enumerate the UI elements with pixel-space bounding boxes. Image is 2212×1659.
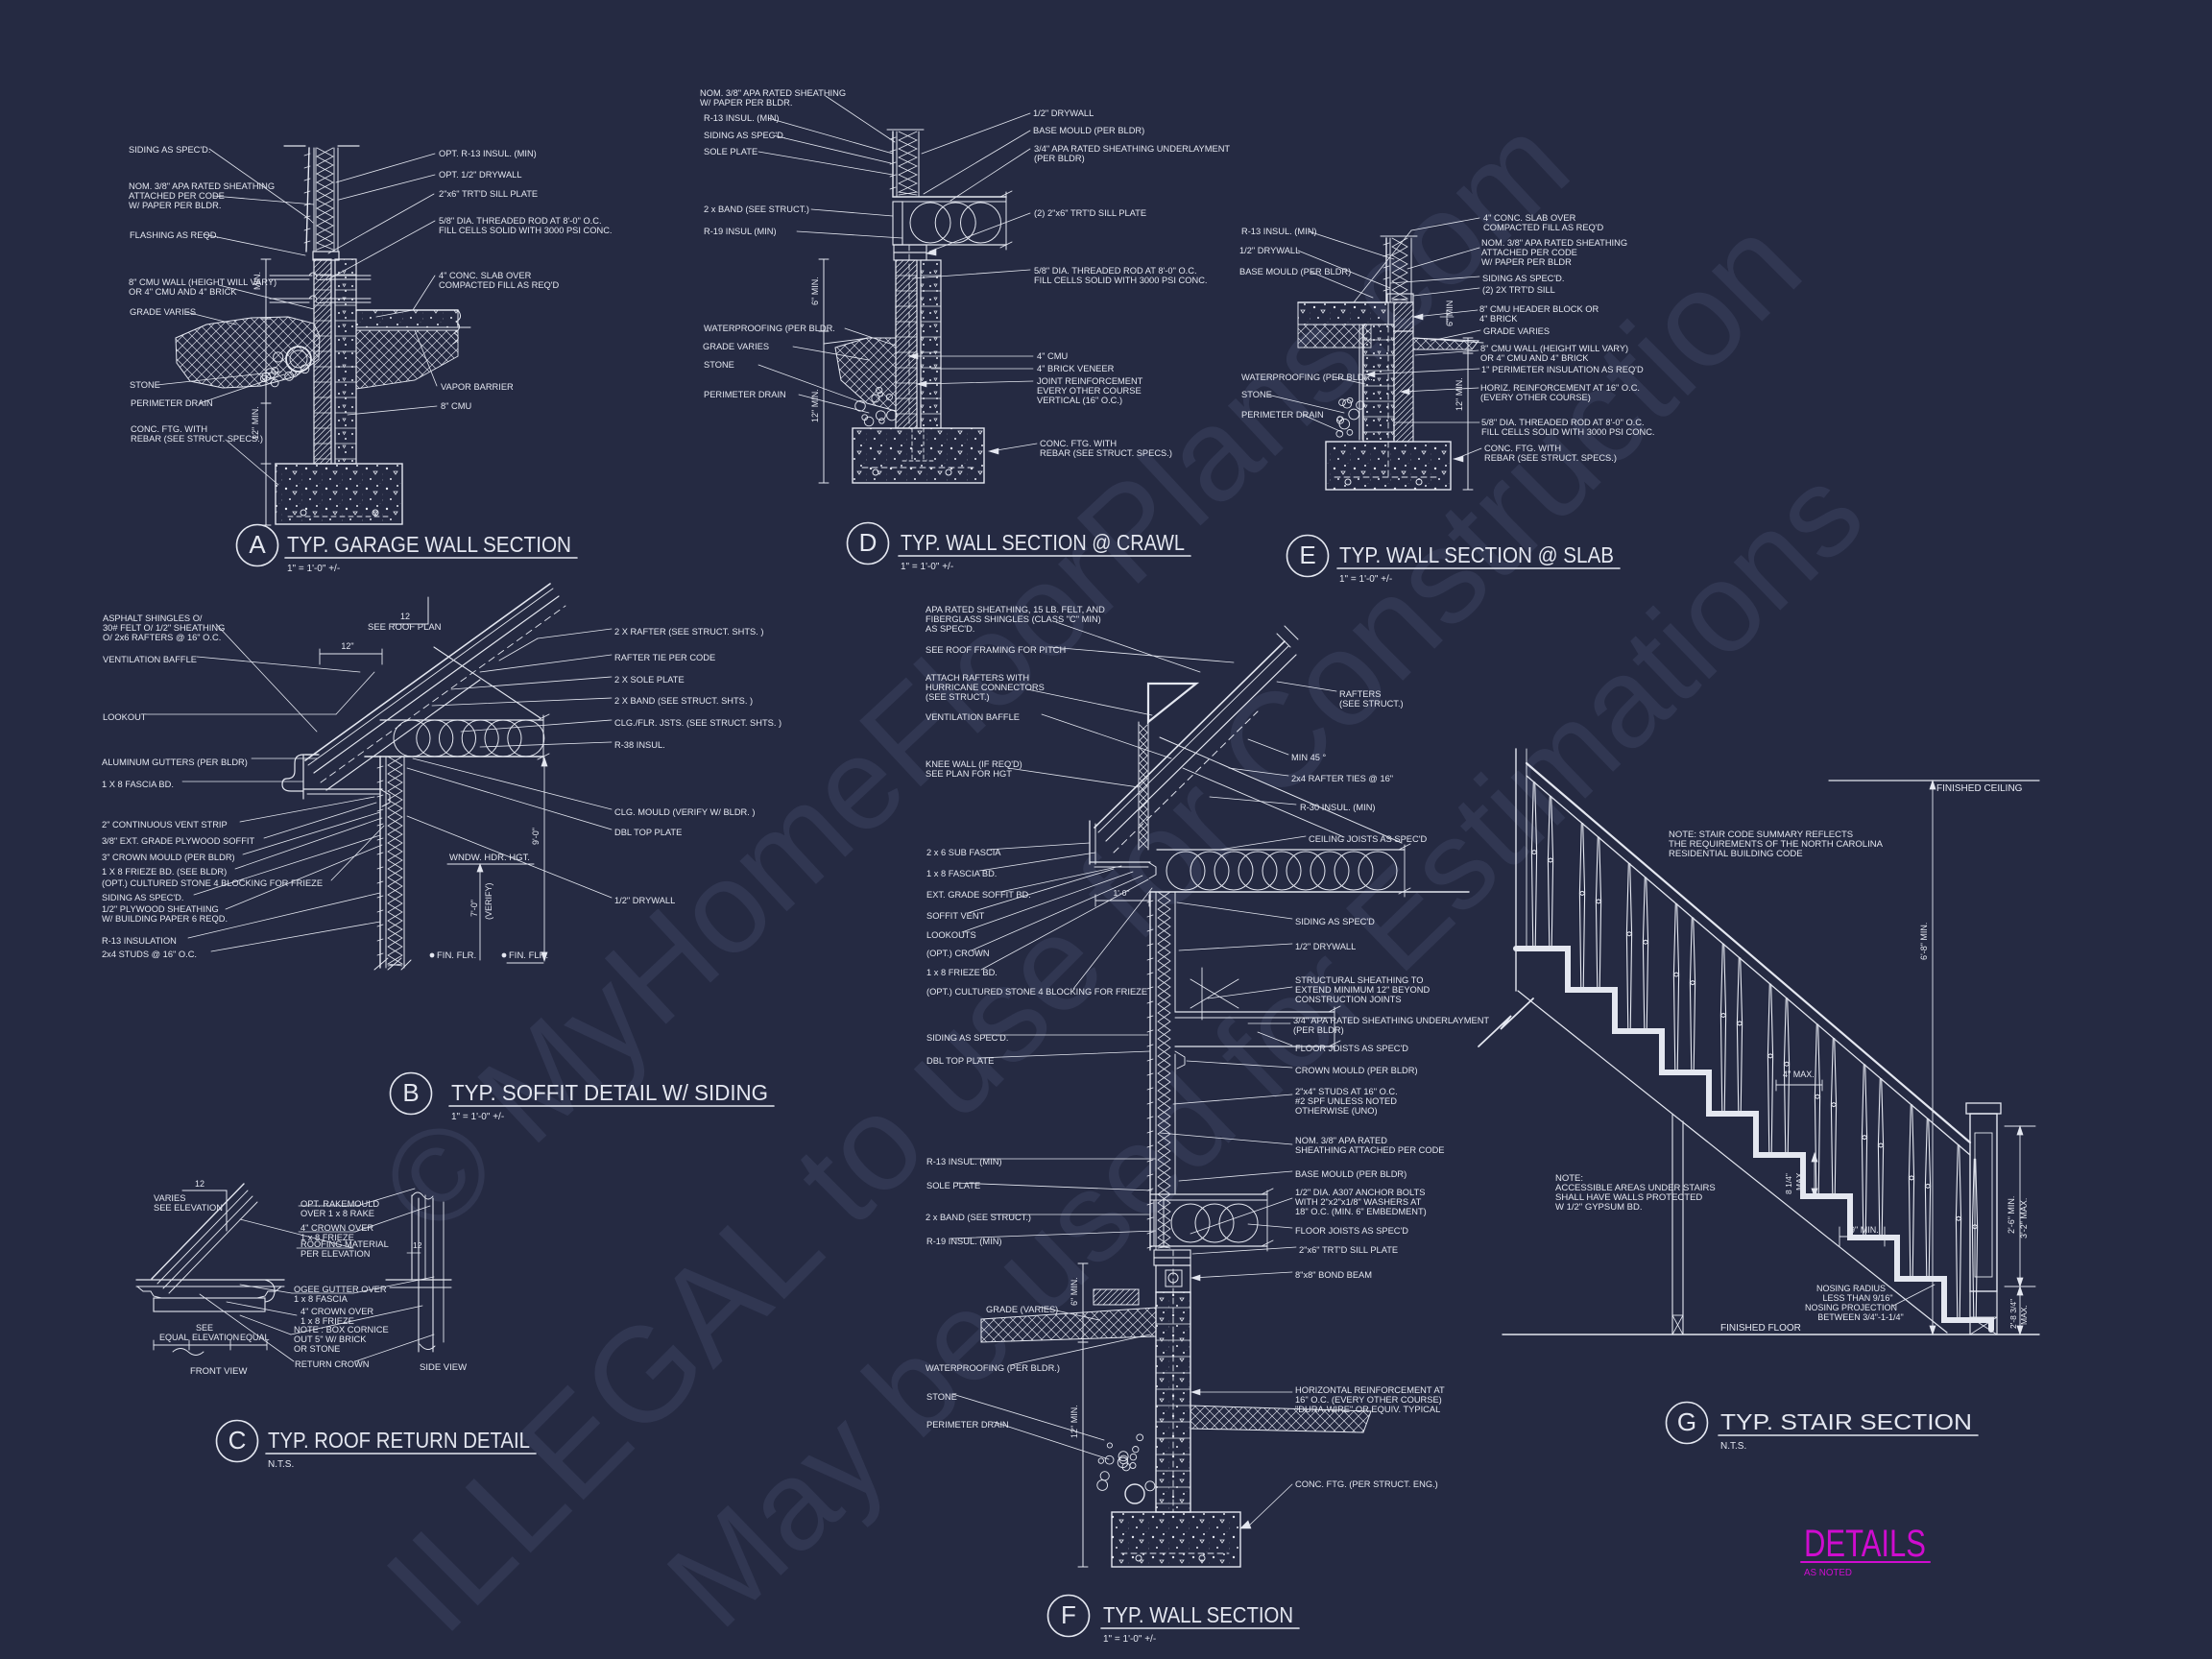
- svg-text:CONC. FTG. WITH: CONC. FTG. WITH: [1484, 444, 1561, 453]
- svg-text:PERIMETER DRAIN: PERIMETER DRAIN: [1241, 410, 1324, 420]
- svg-text:12: 12: [195, 1179, 204, 1189]
- svg-text:CLG. MOULD (VERIFY W/ BLDR. ): CLG. MOULD (VERIFY W/ BLDR. ): [614, 807, 756, 817]
- svg-text:4" CROWN OVER: 4" CROWN OVER: [301, 1307, 373, 1316]
- svg-text:6" MIN.: 6" MIN.: [1070, 1277, 1079, 1306]
- svg-text:1 x 8 FRIEZE BD.: 1 x 8 FRIEZE BD.: [926, 968, 998, 977]
- svg-text:5/8" DIA. THREADED ROD AT 8'-0: 5/8" DIA. THREADED ROD AT 8'-0" O.C.: [1481, 418, 1645, 427]
- svg-text:CEILING JOISTS AS SPEC'D: CEILING JOISTS AS SPEC'D: [1309, 834, 1427, 844]
- svg-text:NOSING PROJECTION: NOSING PROJECTION: [1805, 1303, 1897, 1312]
- svg-text:JOINT REINFORCEMENT: JOINT REINFORCEMENT: [1037, 376, 1143, 386]
- svg-text:AS NOTED: AS NOTED: [1804, 1568, 1852, 1578]
- svg-text:2"x6" TRT'D SILL PLATE: 2"x6" TRT'D SILL PLATE: [1299, 1245, 1398, 1255]
- svg-text:REBAR (SEE STRUCT. SPECS.): REBAR (SEE STRUCT. SPECS.): [131, 434, 263, 444]
- svg-text:1/2" DRYWALL: 1/2" DRYWALL: [614, 896, 675, 905]
- svg-text:6'-8" MIN.: 6'-8" MIN.: [1919, 923, 1929, 960]
- svg-text:R-13 INSUL. (MIN): R-13 INSUL. (MIN): [704, 113, 780, 123]
- svg-text:2 X SOLE PLATE: 2 X SOLE PLATE: [614, 675, 685, 685]
- svg-text:RETURN CROWN: RETURN CROWN: [295, 1359, 369, 1369]
- svg-text:R-13 INSUL. (MIN): R-13 INSUL. (MIN): [1241, 227, 1317, 236]
- svg-text:1" = 1'-0" +/-: 1" = 1'-0" +/-: [451, 1112, 504, 1122]
- svg-text:BASE MOULD (PER BLDR): BASE MOULD (PER BLDR): [1239, 267, 1351, 276]
- svg-text:TYP. WALL SECTION: TYP. WALL SECTION: [1103, 1602, 1293, 1627]
- svg-text:SOLE PLATE: SOLE PLATE: [926, 1181, 980, 1190]
- svg-text:(SEE STRUCT.): (SEE STRUCT.): [1339, 699, 1404, 709]
- svg-text:SIDING AS SPEC'D.: SIDING AS SPEC'D.: [704, 131, 785, 140]
- svg-text:ATTACHED PER CODE: ATTACHED PER CODE: [129, 191, 225, 201]
- svg-text:4" CROWN OVER: 4" CROWN OVER: [301, 1223, 373, 1233]
- svg-text:(OPT.) CROWN: (OPT.) CROWN: [926, 949, 990, 958]
- svg-text:ASPHALT SHINGLES O/: ASPHALT SHINGLES O/: [103, 613, 203, 623]
- svg-text:ELEVATION: ELEVATION: [192, 1333, 239, 1342]
- svg-text:R-30 INSUL. (MIN): R-30 INSUL. (MIN): [1300, 803, 1376, 812]
- svg-text:REBAR (SEE STRUCT. SPECS.): REBAR (SEE STRUCT. SPECS.): [1040, 448, 1172, 458]
- svg-text:4" CMU: 4" CMU: [1037, 351, 1068, 361]
- svg-text:OVER 1 x 8 RAKE: OVER 1 x 8 RAKE: [301, 1209, 374, 1218]
- svg-text:TYP. WALL SECTION @ CRAWL: TYP. WALL SECTION @ CRAWL: [901, 530, 1185, 555]
- svg-text:2 x 6 SUB FASCIA: 2 x 6 SUB FASCIA: [926, 848, 1001, 857]
- svg-text:1 x 8 FASCIA: 1 x 8 FASCIA: [294, 1294, 349, 1304]
- svg-text:2 X BAND (SEE STRUCT. SHTS. ): 2 X BAND (SEE STRUCT. SHTS. ): [614, 696, 753, 706]
- svg-text:OPT. R-13 INSUL. (MIN): OPT. R-13 INSUL. (MIN): [439, 149, 537, 158]
- svg-text:1" = 1'-0" +/-: 1" = 1'-0" +/-: [901, 562, 953, 572]
- svg-text:AS SPEC'D.: AS SPEC'D.: [926, 624, 974, 634]
- svg-text:HURRICANE CONNECTORS: HURRICANE CONNECTORS: [926, 683, 1045, 692]
- svg-text:NOM. 3/8" APA RATED: NOM. 3/8" APA RATED: [1295, 1136, 1387, 1145]
- svg-text:2"x4" STUDS AT 16" O.C.: 2"x4" STUDS AT 16" O.C.: [1295, 1087, 1398, 1096]
- svg-text:PERIMETER DRAIN: PERIMETER DRAIN: [926, 1420, 1009, 1430]
- svg-text:GRADE VARIES: GRADE VARIES: [130, 307, 196, 317]
- svg-text:D: D: [859, 528, 878, 557]
- svg-text:FINISHED FLOOR: FINISHED FLOOR: [1720, 1323, 1801, 1334]
- svg-text:16" O.C. (EVERY OTHER COURSE): 16" O.C. (EVERY OTHER COURSE): [1295, 1395, 1442, 1405]
- svg-text:SEE: SEE: [196, 1323, 213, 1333]
- svg-text:BETWEEN 3/4"-1-1/4": BETWEEN 3/4"-1-1/4": [1817, 1312, 1903, 1322]
- svg-text:ATTACH RAFTERS WITH: ATTACH RAFTERS WITH: [926, 673, 1029, 683]
- svg-text:BASE MOULD (PER BLDR): BASE MOULD (PER BLDR): [1295, 1169, 1407, 1179]
- svg-text:CROWN MOULD (PER BLDR): CROWN MOULD (PER BLDR): [1295, 1066, 1418, 1075]
- svg-text:7'-0": 7'-0": [469, 900, 479, 917]
- svg-text:FILL CELLS SOLID WITH 3000 PSI: FILL CELLS SOLID WITH 3000 PSI CONC.: [1034, 276, 1208, 285]
- svg-text:KNEE WALL (IF REQ'D): KNEE WALL (IF REQ'D): [926, 759, 1022, 769]
- svg-text:SEE ROOF FRAMING FOR PITCH: SEE ROOF FRAMING FOR PITCH: [926, 645, 1066, 655]
- svg-text:SIDE VIEW: SIDE VIEW: [420, 1362, 467, 1373]
- svg-text:WATERPROOFING (PER BLDR.): WATERPROOFING (PER BLDR.): [926, 1363, 1060, 1373]
- svg-text:TYP. SOFFIT DETAIL W/ SIDING: TYP. SOFFIT DETAIL W/ SIDING: [451, 1080, 768, 1105]
- svg-text:COMPACTED FILL AS REQ'D: COMPACTED FILL AS REQ'D: [1483, 223, 1604, 232]
- svg-text:WATERPROOFING (PER BLDR.: WATERPROOFING (PER BLDR.: [1241, 373, 1373, 382]
- svg-text:B: B: [402, 1078, 419, 1107]
- svg-text:OGEE GUTTER OVER: OGEE GUTTER OVER: [294, 1285, 387, 1294]
- svg-text:MAX.: MAX.: [2019, 1305, 2029, 1325]
- svg-text:GRADE VARIES: GRADE VARIES: [1483, 326, 1550, 336]
- svg-text:WATERPROOFING (PER BLDR.: WATERPROOFING (PER BLDR.: [704, 324, 835, 333]
- svg-text:STONE: STONE: [1241, 390, 1272, 399]
- svg-text:1/2" DIA. A307 ANCHOR BOLTS: 1/2" DIA. A307 ANCHOR BOLTS: [1295, 1188, 1425, 1197]
- svg-text:RAFTER TIE PER CODE: RAFTER TIE PER CODE: [614, 653, 715, 662]
- svg-text:STONE: STONE: [926, 1392, 957, 1402]
- svg-text:2 x BAND (SEE STRUCT.): 2 x BAND (SEE STRUCT.): [704, 204, 809, 214]
- svg-text:OR 4" CMU AND 4" BRICK: OR 4" CMU AND 4" BRICK: [1480, 353, 1589, 363]
- svg-text:LESS THAN 9/16": LESS THAN 9/16": [1822, 1293, 1892, 1303]
- svg-text:8" CMU WALL (HEIGHT WILL VARY): 8" CMU WALL (HEIGHT WILL VARY): [1480, 344, 1628, 353]
- svg-text:R-19 INSUL (MIN): R-19 INSUL (MIN): [704, 227, 777, 236]
- svg-text:8" CMU WALL (HEIGHT WILL VARY): 8" CMU WALL (HEIGHT WILL VARY): [129, 277, 276, 287]
- svg-text:SIDING AS SPEC'D.: SIDING AS SPEC'D.: [1482, 274, 1564, 283]
- svg-text:2"x6" TRT'D SILL PLATE: 2"x6" TRT'D SILL PLATE: [439, 189, 538, 199]
- svg-text:FIN. FLR.: FIN. FLR.: [509, 950, 548, 961]
- svg-text:#2 SPF UNLESS NOTED: #2 SPF UNLESS NOTED: [1295, 1096, 1397, 1106]
- svg-text:CONC. FTG. WITH: CONC. FTG. WITH: [1040, 439, 1117, 448]
- svg-text:12" MIN.: 12" MIN.: [1070, 1405, 1079, 1438]
- svg-text:4" MAX.: 4" MAX.: [1783, 1070, 1815, 1079]
- svg-text:COMPACTED FILL AS REQ'D: COMPACTED FILL AS REQ'D: [439, 280, 560, 290]
- svg-text:1/2" PLYWOOD SHEATHING: 1/2" PLYWOOD SHEATHING: [102, 904, 219, 914]
- svg-text:1 X 8 FRIEZE BD. (SEE BLDR): 1 X 8 FRIEZE BD. (SEE BLDR): [102, 867, 227, 877]
- svg-text:VARIES: VARIES: [154, 1193, 185, 1203]
- svg-text:N.T.S.: N.T.S.: [268, 1459, 294, 1470]
- svg-text:2x4 STUDS @ 16" O.C.: 2x4 STUDS @ 16" O.C.: [102, 950, 197, 959]
- svg-text:OTHERWISE (UNO): OTHERWISE (UNO): [1295, 1106, 1378, 1116]
- svg-text:W/ PAPER PER BLDR.: W/ PAPER PER BLDR.: [129, 201, 221, 210]
- svg-text:FILL CELLS SOLID WITH 3000 PSI: FILL CELLS SOLID WITH 3000 PSI CONC.: [439, 226, 613, 235]
- svg-text:2" CONTINUOUS VENT STRIP: 2" CONTINUOUS VENT STRIP: [102, 820, 228, 829]
- svg-text:FIBERGLASS SHINGLES (CLASS "C": FIBERGLASS SHINGLES (CLASS "C" MIN): [926, 614, 1101, 624]
- svg-text:8 1/4": 8 1/4": [1784, 1173, 1793, 1194]
- svg-text:3/4" APA RATED SHEATHING UNDER: 3/4" APA RATED SHEATHING UNDERLAYMENT: [1293, 1016, 1489, 1025]
- svg-text:O/ 2x6 RAFTERS @ 16" O.C.: O/ 2x6 RAFTERS @ 16" O.C.: [103, 633, 221, 642]
- svg-text:EXT. GRADE SOFFIT BD.: EXT. GRADE SOFFIT BD.: [926, 890, 1031, 900]
- svg-text:BASE MOULD (PER BLDR): BASE MOULD (PER BLDR): [1033, 126, 1144, 135]
- svg-text:MIN 45 °: MIN 45 °: [1291, 753, 1327, 762]
- svg-text:F: F: [1061, 1600, 1076, 1629]
- svg-text:SIDING AS SPEC'D.: SIDING AS SPEC'D.: [102, 893, 183, 902]
- svg-text:SOFFIT VENT: SOFFIT VENT: [926, 911, 985, 921]
- svg-text:TYP. WALL SECTION @ SLAB: TYP. WALL SECTION @ SLAB: [1339, 542, 1614, 567]
- svg-text:(PER BLDR): (PER BLDR): [1034, 154, 1085, 163]
- svg-text:SIDING AS SPEC'D.: SIDING AS SPEC'D.: [129, 145, 210, 155]
- svg-text:9'-0": 9'-0": [531, 828, 541, 845]
- svg-text:C: C: [228, 1426, 247, 1455]
- svg-text:(EVERY OTHER COURSE): (EVERY OTHER COURSE): [1480, 393, 1591, 402]
- svg-text:E: E: [1299, 541, 1315, 569]
- svg-text:8"x8" BOND BEAM: 8"x8" BOND BEAM: [1295, 1270, 1372, 1280]
- svg-text:R-13 INSULATION: R-13 INSULATION: [102, 936, 177, 946]
- svg-text:R-19 INSUL. (MIN): R-19 INSUL. (MIN): [926, 1237, 1002, 1246]
- svg-text:DETAILS: DETAILS: [1804, 1523, 1926, 1565]
- svg-text:REBAR (SEE STRUCT. SPECS.): REBAR (SEE STRUCT. SPECS.): [1484, 453, 1617, 463]
- svg-text:VENTILATION BAFFLE: VENTILATION BAFFLE: [926, 712, 1020, 722]
- svg-text:NOM. 3/8" APA RATED SHEATHING: NOM. 3/8" APA RATED SHEATHING: [700, 88, 846, 98]
- svg-text:1 X 8 FASCIA BD.: 1 X 8 FASCIA BD.: [102, 780, 174, 789]
- svg-text:CONSTRUCTION JOINTS: CONSTRUCTION JOINTS: [1295, 995, 1402, 1004]
- svg-text:18" O.C. (MIN. 6" EMBEDMENT): 18" O.C. (MIN. 6" EMBEDMENT): [1295, 1207, 1427, 1216]
- svg-text:(VERIFY): (VERIFY): [484, 882, 493, 920]
- svg-text:GRADE (VARIES): GRADE (VARIES): [986, 1305, 1058, 1314]
- svg-text:(SEE STRUCT.): (SEE STRUCT.): [926, 692, 990, 702]
- svg-text:FILL CELLS SOLID WITH 3000 PSI: FILL CELLS SOLID WITH 3000 PSI CONC.: [1481, 427, 1655, 437]
- svg-text:(2) 2X TRT'D SILL: (2) 2X TRT'D SILL: [1482, 285, 1555, 295]
- svg-text:SEE ROOF PLAN: SEE ROOF PLAN: [368, 622, 442, 633]
- svg-text:WNDW. HDR. HGT.: WNDW. HDR. HGT.: [449, 853, 530, 863]
- svg-text:EVERY OTHER COURSE: EVERY OTHER COURSE: [1037, 386, 1142, 396]
- svg-text:WITH 2"x2"x1/8" WASHERS AT: WITH 2"x2"x1/8" WASHERS AT: [1295, 1197, 1422, 1207]
- svg-text:APA RATED SHEATHING, 15 LB. FE: APA RATED SHEATHING, 15 LB. FELT, AND: [926, 605, 1105, 614]
- svg-text:1/2" DRYWALL: 1/2" DRYWALL: [1295, 942, 1356, 951]
- svg-text:30# FELT O/ 1/2" SHEATHING: 30# FELT O/ 1/2" SHEATHING: [103, 623, 225, 633]
- svg-text:FLASHING AS REQD.: FLASHING AS REQD.: [130, 230, 219, 240]
- svg-text:W 1/2" GYPSUM BD.: W 1/2" GYPSUM BD.: [1555, 1202, 1642, 1213]
- svg-text:3" CROWN MOULD (PER BLDR): 3" CROWN MOULD (PER BLDR): [102, 853, 235, 862]
- svg-text:4" BRICK: 4" BRICK: [1479, 314, 1518, 324]
- svg-text:N.T.S.: N.T.S.: [1720, 1441, 1746, 1452]
- svg-text:"DURA-WIRE" OR EQUIV. TYPICAL: "DURA-WIRE" OR EQUIV. TYPICAL: [1295, 1405, 1440, 1414]
- svg-text:3/8" EXT. GRADE PLYWOOD SOFFIT: 3/8" EXT. GRADE PLYWOOD SOFFIT: [102, 836, 254, 846]
- svg-text:1'-0": 1'-0": [1114, 888, 1130, 898]
- svg-text:NOSING RADIUS: NOSING RADIUS: [1816, 1284, 1886, 1293]
- svg-text:(PER BLDR): (PER BLDR): [1293, 1025, 1344, 1035]
- svg-text:SOLE PLATE: SOLE PLATE: [704, 147, 757, 156]
- svg-text:FRONT VIEW: FRONT VIEW: [190, 1366, 247, 1377]
- svg-text:1" = 1'-0" +/-: 1" = 1'-0" +/-: [287, 564, 340, 574]
- svg-text:6" MIN.: 6" MIN.: [810, 276, 820, 305]
- svg-text:12" MIN.: 12" MIN.: [1455, 377, 1464, 411]
- svg-text:NOM. 3/8" APA RATED SHEATHING: NOM. 3/8" APA RATED SHEATHING: [129, 181, 275, 191]
- svg-text:2 X RAFTER (SEE STRUCT. SHTS.: 2 X RAFTER (SEE STRUCT. SHTS. ): [614, 627, 763, 637]
- svg-text:PERIMETER DRAIN: PERIMETER DRAIN: [704, 390, 786, 399]
- svg-text:1/2" DRYWALL: 1/2" DRYWALL: [1033, 108, 1094, 118]
- svg-text:VENTILATION BAFFLE: VENTILATION BAFFLE: [103, 655, 197, 664]
- svg-text:FLOOR JOISTS AS SPEC'D: FLOOR JOISTS AS SPEC'D: [1295, 1226, 1408, 1236]
- svg-text:FIN. FLR.: FIN. FLR.: [437, 950, 476, 961]
- svg-text:OUT 5" W/ BRICK: OUT 5" W/ BRICK: [294, 1334, 367, 1344]
- svg-text:2 x BAND (SEE STRUCT.): 2 x BAND (SEE STRUCT.): [926, 1213, 1031, 1222]
- svg-text:LOOKOUTS: LOOKOUTS: [926, 930, 976, 940]
- svg-text:FLOOR JOISTS AS SPEC'D: FLOOR JOISTS AS SPEC'D: [1295, 1044, 1408, 1053]
- svg-text:FINISHED CEILING: FINISHED CEILING: [1936, 783, 2023, 794]
- svg-text:RESIDENTIAL BUILDING CODE: RESIDENTIAL BUILDING CODE: [1669, 849, 1803, 859]
- svg-text:(OPT.) CULTURED STONE 4 BLOCKI: (OPT.) CULTURED STONE 4 BLOCKING FOR FRI…: [102, 878, 323, 888]
- svg-text:EXTEND MINIMUM 12" BEYOND: EXTEND MINIMUM 12" BEYOND: [1295, 985, 1430, 995]
- svg-text:1" = 1'-0" +/-: 1" = 1'-0" +/-: [1339, 574, 1392, 585]
- svg-text:CONC. FTG. (PER STRUCT. ENG.): CONC. FTG. (PER STRUCT. ENG.): [1295, 1479, 1438, 1489]
- svg-text:ATTACHED PER CODE: ATTACHED PER CODE: [1481, 248, 1577, 257]
- svg-text:MAX.: MAX.: [1794, 1170, 1804, 1190]
- svg-text:12: 12: [400, 612, 410, 621]
- svg-text:3'-2" MAX.: 3'-2" MAX.: [2019, 1198, 2029, 1238]
- svg-text:8" CMU HEADER BLOCK OR: 8" CMU HEADER BLOCK OR: [1479, 304, 1599, 314]
- svg-text:2x4 RAFTER TIES @ 16": 2x4 RAFTER TIES @ 16": [1291, 774, 1393, 783]
- svg-text:DBL TOP PLATE: DBL TOP PLATE: [614, 828, 682, 837]
- svg-text:DBL TOP PLATE: DBL TOP PLATE: [926, 1056, 994, 1066]
- svg-text:ALUMINUM GUTTERS (PER BLDR): ALUMINUM GUTTERS (PER BLDR): [102, 757, 248, 767]
- svg-text:(OPT.) CULTURED STONE 4 BLOCKI: (OPT.) CULTURED STONE 4 BLOCKING FOR FRI…: [926, 987, 1147, 997]
- svg-text:EQUAL: EQUAL: [159, 1333, 189, 1342]
- svg-text:(2) 2"x6" TRT'D SILL PLATE: (2) 2"x6" TRT'D SILL PLATE: [1034, 208, 1146, 218]
- svg-text:W/ BUILDING PAPER 6 REQD.: W/ BUILDING PAPER 6 REQD.: [102, 914, 228, 924]
- svg-text:3/4" APA RATED SHEATHING UNDER: 3/4" APA RATED SHEATHING UNDERLAYMENT: [1034, 144, 1230, 154]
- svg-text:VAPOR BARRIER: VAPOR BARRIER: [441, 382, 514, 392]
- svg-text:STONE: STONE: [704, 360, 734, 370]
- svg-text:CLG./FLR. JSTS. (SEE STRUCT. S: CLG./FLR. JSTS. (SEE STRUCT. SHTS. ): [614, 718, 781, 728]
- svg-text:GRADE VARIES: GRADE VARIES: [703, 342, 769, 351]
- svg-text:G: G: [1677, 1407, 1696, 1436]
- svg-text:W/ PAPER PER BLDR.: W/ PAPER PER BLDR.: [700, 98, 792, 108]
- svg-text:RAFTERS: RAFTERS: [1339, 689, 1381, 699]
- svg-text:8" CMU: 8" CMU: [441, 401, 471, 411]
- svg-text:SEE ELEVATION: SEE ELEVATION: [154, 1203, 223, 1213]
- svg-text:CONC. FTG. WITH: CONC. FTG. WITH: [131, 424, 207, 434]
- svg-text:OR 4" CMU AND 4" BRICK: OR 4" CMU AND 4" BRICK: [129, 287, 237, 297]
- svg-text:HORIZ. REINFORCEMENT AT 16" O.: HORIZ. REINFORCEMENT AT 16" O.C.: [1480, 383, 1640, 393]
- svg-text:SEE PLAN FOR HGT: SEE PLAN FOR HGT: [926, 769, 1012, 779]
- svg-text:12: 12: [413, 1240, 422, 1250]
- svg-text:2'-8 3/4": 2'-8 3/4": [2008, 1299, 2018, 1329]
- svg-text:OR STONE: OR STONE: [294, 1344, 340, 1354]
- svg-text:1" = 1'-0" +/-: 1" = 1'-0" +/-: [1103, 1634, 1156, 1645]
- svg-text:12": 12": [341, 641, 353, 651]
- svg-text:1" PERIMETER INSULATION AS REQ: 1" PERIMETER INSULATION AS REQ'D: [1481, 365, 1644, 374]
- svg-text:5/8" DIA. THREADED ROD AT 8'-0: 5/8" DIA. THREADED ROD AT 8'-0" O.C.: [1034, 266, 1197, 276]
- svg-text:HORIZONTAL REINFORCEMENT AT: HORIZONTAL REINFORCEMENT AT: [1295, 1385, 1445, 1395]
- svg-text:STONE: STONE: [130, 380, 160, 390]
- svg-text:NOM. 3/8" APA RATED SHEATHING: NOM. 3/8" APA RATED SHEATHING: [1481, 238, 1627, 248]
- svg-text:1/2" DRYWALL: 1/2" DRYWALL: [1239, 246, 1300, 255]
- svg-text:OPT. 1/2" DRYWALL: OPT. 1/2" DRYWALL: [439, 170, 522, 180]
- svg-text:R-13 INSUL. (MIN): R-13 INSUL. (MIN): [926, 1157, 1002, 1166]
- svg-text:SIDING AS SPEC'D.: SIDING AS SPEC'D.: [926, 1033, 1008, 1043]
- svg-text:9" MIN.: 9" MIN.: [1850, 1225, 1879, 1235]
- svg-text:TYP. GARAGE WALL SECTION: TYP. GARAGE WALL SECTION: [287, 532, 571, 557]
- svg-text:OPT. RAKEMOULD: OPT. RAKEMOULD: [301, 1199, 379, 1209]
- svg-text:PER ELEVATION: PER ELEVATION: [301, 1249, 371, 1259]
- svg-text:SIDING AS SPEC'D: SIDING AS SPEC'D: [1295, 917, 1375, 926]
- svg-text:VERTICAL (16" O.C.): VERTICAL (16" O.C.): [1037, 396, 1122, 405]
- svg-text:2'-6" MIN.: 2'-6" MIN.: [2007, 1196, 2016, 1234]
- svg-text:NOTE : BOX CORNICE: NOTE : BOX CORNICE: [294, 1325, 389, 1334]
- svg-text:PERIMETER DRAIN: PERIMETER DRAIN: [131, 398, 213, 408]
- svg-text:4" CONC. SLAB OVER: 4" CONC. SLAB OVER: [439, 271, 532, 280]
- svg-text:4" BRICK VENEER: 4" BRICK VENEER: [1037, 364, 1115, 373]
- svg-text:A: A: [249, 530, 266, 559]
- svg-text:R-38 INSUL.: R-38 INSUL.: [614, 740, 665, 750]
- svg-text:STRUCTURAL SHEATHING TO: STRUCTURAL SHEATHING TO: [1295, 975, 1423, 985]
- svg-text:SHEATHING ATTACHED PER CODE: SHEATHING ATTACHED PER CODE: [1295, 1145, 1444, 1155]
- svg-text:5/8" DIA. THREADED ROD AT 8'-0: 5/8" DIA. THREADED ROD AT 8'-0" O.C.: [439, 216, 602, 226]
- svg-text:TYP. ROOF RETURN DETAIL: TYP. ROOF RETURN DETAIL: [268, 1428, 530, 1453]
- svg-text:12" MIN.: 12" MIN.: [810, 389, 820, 422]
- svg-text:TYP. STAIR SECTION: TYP. STAIR SECTION: [1720, 1409, 1972, 1434]
- svg-text:W/ PAPER PER BLDR: W/ PAPER PER BLDR: [1481, 257, 1572, 267]
- svg-text:1 x 8 FASCIA BD.: 1 x 8 FASCIA BD.: [926, 869, 997, 878]
- svg-text:LOOKOUT: LOOKOUT: [103, 712, 147, 722]
- svg-text:ROOFING MATERIAL: ROOFING MATERIAL: [301, 1239, 389, 1249]
- svg-text:4" CONC. SLAB OVER: 4" CONC. SLAB OVER: [1483, 213, 1576, 223]
